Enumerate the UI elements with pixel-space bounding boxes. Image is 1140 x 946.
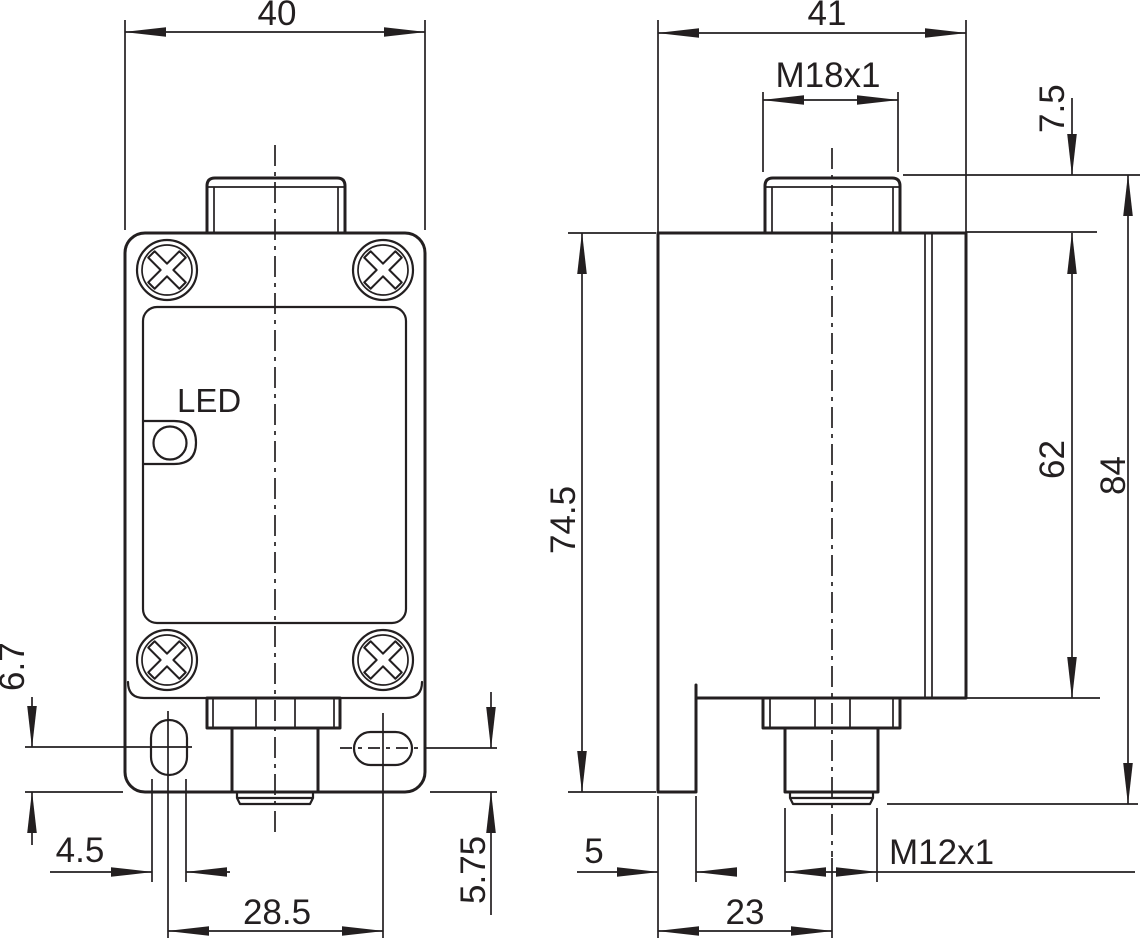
dim-label-m12x1: M12x1 xyxy=(889,833,994,872)
dim-side-housing-height: 62 xyxy=(966,232,1100,698)
dim-label-40: 40 xyxy=(258,0,297,33)
dimension-drawing: LED xyxy=(0,0,1140,946)
front-cover-panel xyxy=(143,307,406,623)
dim-side-connector-offset: 23 xyxy=(658,858,832,938)
screw-bottom-right xyxy=(352,629,414,691)
dim-label-5: 5 xyxy=(584,832,603,871)
dim-label-23: 23 xyxy=(726,893,765,932)
dim-front-slot-width: 4.5 xyxy=(50,779,230,882)
front-connector xyxy=(207,698,340,804)
dim-side-thread-protrusion: 7.5 xyxy=(903,84,1140,175)
dim-label-62: 62 xyxy=(1033,440,1072,479)
dim-label-4-5: 4.5 xyxy=(56,831,105,870)
dim-side-connector-thread: M12x1 xyxy=(785,808,1135,882)
front-thread-stub xyxy=(207,178,345,233)
screw-top-right xyxy=(352,239,414,301)
dim-label-m18x1: M18x1 xyxy=(775,56,880,95)
dim-label-74-5: 74.5 xyxy=(544,486,583,554)
dim-side-bracket-height: 74.5 xyxy=(544,233,656,792)
screw-top-left xyxy=(136,239,198,301)
dimension-drawing-page: LED xyxy=(0,0,1140,946)
led-indicator: LED xyxy=(144,382,241,464)
dim-side-bracket-thickness: 5 xyxy=(577,796,737,938)
front-view: LED xyxy=(125,145,425,832)
front-connector-nut xyxy=(207,698,340,728)
dim-side-thread: M18x1 xyxy=(763,56,898,172)
led-lens xyxy=(154,427,187,460)
dim-label-84: 84 xyxy=(1094,456,1133,495)
dim-front-right-slot-offset: 5.75 xyxy=(340,692,497,915)
dim-label-28-5: 28.5 xyxy=(243,893,311,932)
dim-label-7-5: 7.5 xyxy=(1033,84,1072,133)
dim-label-5-75: 5.75 xyxy=(454,836,493,904)
side-view xyxy=(658,148,966,857)
dim-label-6-7: 6.7 xyxy=(0,642,32,691)
side-housing-body xyxy=(658,233,966,792)
dim-side-overall-depth: 41 xyxy=(658,0,966,232)
led-label: LED xyxy=(177,382,241,419)
dim-label-41: 41 xyxy=(808,0,847,33)
dim-front-slot-offset: 6.7 xyxy=(0,642,192,845)
screw-bottom-left xyxy=(136,629,198,691)
